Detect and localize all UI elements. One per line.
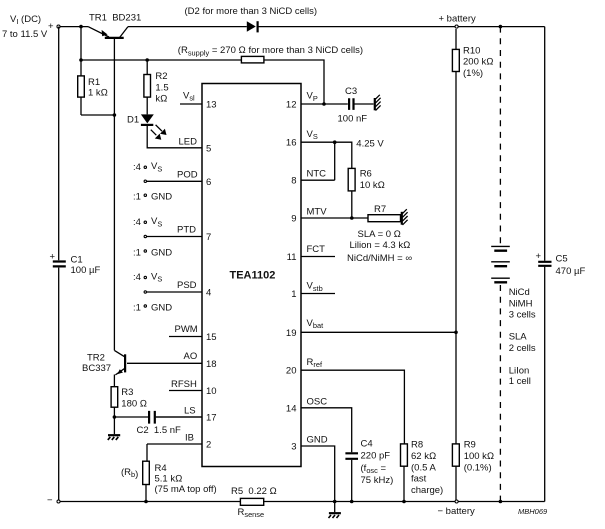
svg-text:1 cell: 1 cell — [509, 376, 531, 387]
svg-text:NiMH: NiMH — [509, 298, 533, 309]
svg-text:NiCd: NiCd — [509, 287, 530, 298]
svg-text:470 µF: 470 µF — [556, 266, 586, 277]
svg-text:C4: C4 — [361, 438, 373, 449]
svg-text:IB: IB — [185, 433, 194, 444]
svg-text:TR2: TR2 — [87, 353, 105, 364]
svg-text:100 nF: 100 nF — [338, 114, 368, 125]
svg-text:− battery: − battery — [438, 506, 475, 517]
svg-text:5: 5 — [206, 143, 211, 154]
svg-text:R5 0.22 Ω: R5 0.22 Ω — [231, 486, 277, 497]
svg-text:AO: AO — [184, 351, 198, 362]
svg-text:10 kΩ: 10 kΩ — [360, 180, 385, 191]
svg-text:TR1 BD231: TR1 BD231 — [89, 13, 141, 24]
svg-text:200 kΩ: 200 kΩ — [463, 56, 494, 67]
svg-text:C1: C1 — [71, 255, 83, 266]
svg-text:fast: fast — [411, 474, 427, 485]
svg-text:11: 11 — [287, 252, 297, 263]
svg-text::1: :1 — [133, 247, 141, 258]
svg-text:BC337: BC337 — [82, 363, 111, 374]
svg-text:15: 15 — [206, 332, 217, 343]
svg-text:75 kHz): 75 kHz) — [361, 475, 394, 486]
svg-text:OSC: OSC — [307, 396, 328, 407]
svg-text:MTV: MTV — [307, 207, 328, 218]
svg-text:TEA1102: TEA1102 — [230, 270, 276, 282]
svg-text:R7: R7 — [374, 204, 386, 215]
svg-text:PTD: PTD — [177, 225, 196, 236]
svg-text:C3: C3 — [345, 86, 357, 97]
svg-text::1: :1 — [133, 192, 141, 203]
svg-text:Lilion = 4.3 kΩ: Lilion = 4.3 kΩ — [350, 240, 411, 251]
svg-text::4: :4 — [133, 162, 141, 173]
svg-text:(D2 for more than 3 NiCD cells: (D2 for more than 3 NiCD cells) — [185, 6, 318, 17]
svg-text:62 kΩ: 62 kΩ — [411, 451, 436, 462]
svg-text:(0.5 A: (0.5 A — [411, 462, 436, 473]
svg-text:D1: D1 — [127, 115, 139, 126]
svg-text:LiIon: LiIon — [509, 366, 530, 377]
svg-text:16: 16 — [286, 138, 297, 149]
svg-text:100 kΩ: 100 kΩ — [464, 451, 495, 462]
svg-text::1: :1 — [133, 302, 141, 313]
svg-text:2 cells: 2 cells — [509, 343, 536, 354]
svg-text:4.25 V: 4.25 V — [356, 139, 384, 150]
svg-text:7 to 11.5 V: 7 to 11.5 V — [2, 29, 48, 40]
svg-text:(0.1%): (0.1%) — [464, 462, 492, 473]
svg-text:20: 20 — [286, 366, 297, 377]
svg-text:5.1 kΩ: 5.1 kΩ — [155, 474, 183, 485]
svg-text:+: + — [50, 252, 56, 263]
svg-text:4: 4 — [206, 288, 211, 299]
svg-text:GND: GND — [307, 435, 328, 446]
svg-text:NTC: NTC — [307, 169, 327, 180]
svg-text:7: 7 — [206, 232, 211, 243]
svg-text:NiCd/NiMH = ∞: NiCd/NiMH = ∞ — [347, 253, 412, 264]
svg-text:R3: R3 — [121, 387, 133, 398]
svg-text:180 Ω: 180 Ω — [121, 398, 147, 409]
svg-text:3: 3 — [291, 442, 296, 453]
svg-text:SLA = 0 Ω: SLA = 0 Ω — [358, 229, 401, 240]
svg-text:+: + — [536, 251, 542, 262]
svg-text:1: 1 — [291, 289, 296, 300]
svg-text:kΩ: kΩ — [155, 93, 167, 104]
svg-text:3 cells: 3 cells — [509, 310, 536, 321]
svg-text:6: 6 — [206, 177, 211, 188]
svg-text:C5: C5 — [556, 254, 568, 265]
svg-text:R1: R1 — [88, 77, 100, 88]
svg-text:R8: R8 — [411, 439, 423, 450]
svg-text:R10: R10 — [463, 46, 480, 57]
svg-text:PWM: PWM — [175, 324, 198, 335]
svg-text:FCT: FCT — [307, 244, 326, 255]
svg-text:(75 mA top off): (75 mA top off) — [155, 484, 217, 495]
svg-text:1 kΩ: 1 kΩ — [88, 88, 108, 99]
svg-text:VI (DC): VI (DC) — [10, 14, 41, 26]
svg-text:10: 10 — [206, 386, 217, 397]
svg-text:LS: LS — [184, 406, 196, 417]
svg-text:8: 8 — [291, 176, 296, 187]
svg-text:GND: GND — [151, 247, 172, 258]
svg-text:R6: R6 — [360, 169, 372, 180]
svg-text:+ battery: + battery — [439, 14, 476, 25]
svg-text:−: − — [47, 495, 53, 506]
svg-text:+: + — [48, 21, 54, 32]
svg-text:14: 14 — [286, 403, 297, 414]
svg-text:PSD: PSD — [177, 280, 197, 291]
svg-text:12: 12 — [286, 100, 297, 111]
svg-text:19: 19 — [286, 328, 297, 339]
svg-text:GND: GND — [151, 192, 172, 203]
svg-text:220 pF: 220 pF — [361, 451, 391, 462]
svg-text:R9: R9 — [464, 439, 476, 450]
svg-text:100 µF: 100 µF — [71, 265, 101, 276]
svg-text::4: :4 — [133, 217, 141, 228]
svg-text:SLA: SLA — [509, 332, 528, 343]
svg-text:18: 18 — [206, 359, 217, 370]
svg-text:17: 17 — [206, 413, 217, 424]
svg-text:POD: POD — [177, 169, 198, 180]
svg-text:9: 9 — [291, 214, 296, 225]
svg-text:C2 1.5 nF: C2 1.5 nF — [137, 425, 182, 436]
svg-text:RFSH: RFSH — [171, 379, 197, 390]
svg-text:R4: R4 — [155, 463, 167, 474]
svg-text:R2: R2 — [155, 71, 167, 82]
svg-text:2: 2 — [206, 440, 211, 451]
svg-text::4: :4 — [133, 272, 141, 283]
svg-text:1.5: 1.5 — [155, 82, 168, 93]
svg-text:(1%): (1%) — [463, 68, 483, 79]
svg-text:13: 13 — [206, 100, 217, 111]
svg-text:MBH069: MBH069 — [518, 507, 548, 516]
svg-text:LED: LED — [179, 137, 198, 148]
svg-text:charge): charge) — [411, 485, 443, 496]
svg-text:GND: GND — [151, 302, 172, 313]
